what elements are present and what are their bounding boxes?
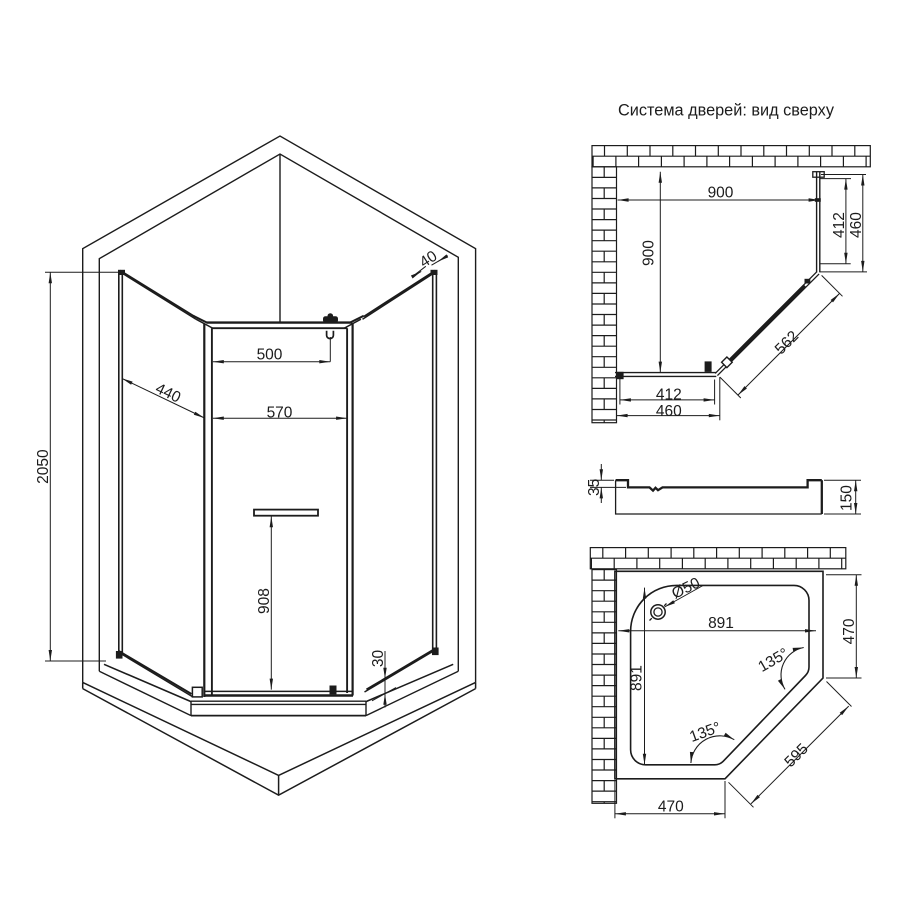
svg-text:2050: 2050 — [35, 449, 52, 484]
svg-text:Система дверей: вид сверху: Система дверей: вид сверху — [618, 102, 835, 120]
svg-text:412: 412 — [656, 386, 682, 403]
svg-text:35: 35 — [586, 479, 603, 496]
svg-text:150: 150 — [839, 485, 856, 511]
svg-text:470: 470 — [658, 798, 684, 815]
svg-text:891: 891 — [708, 615, 734, 632]
svg-text:900: 900 — [708, 185, 734, 202]
svg-text:500: 500 — [257, 346, 283, 363]
svg-text:460: 460 — [848, 212, 865, 238]
svg-text:891: 891 — [628, 665, 645, 691]
svg-text:460: 460 — [656, 403, 682, 420]
svg-text:570: 570 — [267, 404, 293, 421]
svg-text:908: 908 — [256, 588, 273, 614]
svg-text:30: 30 — [370, 650, 387, 668]
svg-text:412: 412 — [831, 212, 848, 238]
svg-text:900: 900 — [640, 240, 657, 266]
svg-text:470: 470 — [841, 618, 858, 644]
